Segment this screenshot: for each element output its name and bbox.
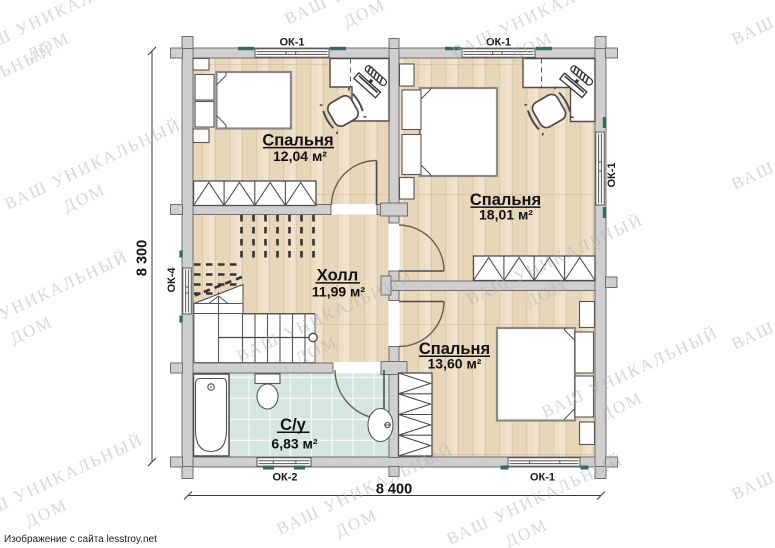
svg-text:Спальня: Спальня	[262, 132, 333, 150]
svg-text:ОК-1: ОК-1	[606, 162, 618, 187]
svg-text:18,01 м²: 18,01 м²	[479, 207, 533, 223]
svg-text:Изображение с сайта lesstroy.n: Изображение с сайта lesstroy.net	[4, 533, 157, 545]
svg-text:12,04 м²: 12,04 м²	[273, 148, 327, 164]
svg-text:С/у: С/у	[280, 416, 307, 434]
svg-text:ОК-1: ОК-1	[279, 37, 304, 49]
svg-text:ОК-2: ОК-2	[272, 472, 297, 484]
svg-text:ОК-4: ОК-4	[166, 267, 178, 293]
svg-text:Холл: Холл	[317, 267, 358, 285]
svg-text:8 300: 8 300	[135, 240, 151, 276]
svg-text:6,83 м²: 6,83 м²	[271, 436, 317, 452]
svg-text:13,60 м²: 13,60 м²	[428, 356, 482, 372]
